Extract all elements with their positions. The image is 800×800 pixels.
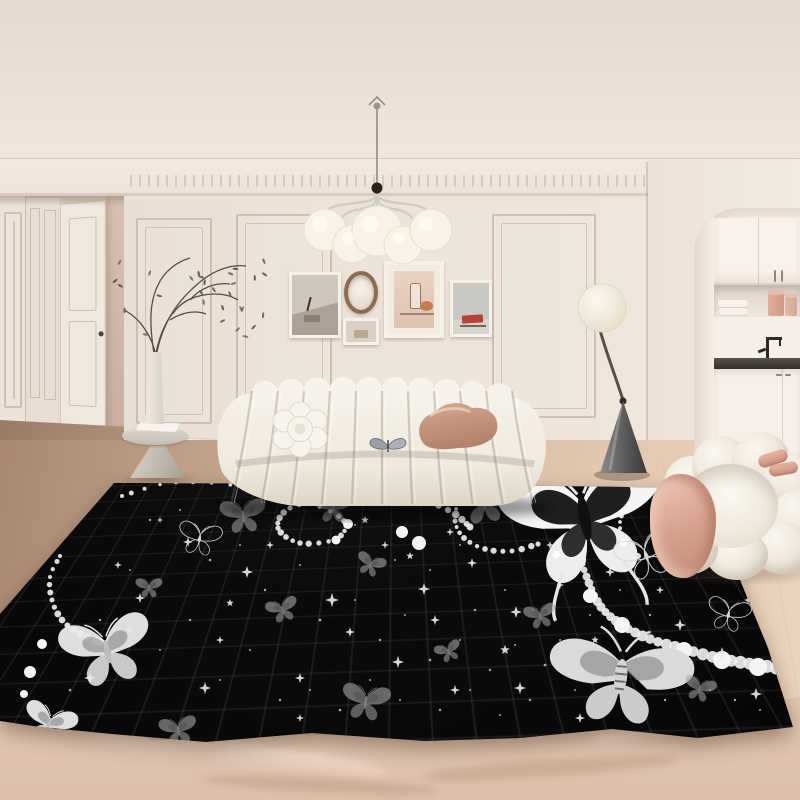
cabinet-handle <box>785 374 791 376</box>
wainscot-panel <box>492 214 596 418</box>
picture-frame-sketch <box>289 272 341 338</box>
hallway-back-wall <box>106 196 124 456</box>
dentil-band <box>130 175 690 187</box>
floor-planks <box>260 446 481 496</box>
picture-frame-small <box>343 318 379 345</box>
folded-towel <box>719 308 748 315</box>
kitchen-niche-shelf <box>714 285 800 317</box>
upper-cabinets <box>714 218 800 285</box>
cabinet-handle <box>776 374 782 376</box>
door-handle <box>99 331 104 336</box>
wall-corner <box>646 162 648 468</box>
round-bronze-mirror <box>344 271 378 314</box>
cabinet-handle <box>774 270 776 282</box>
picture-frame-still-life <box>384 261 444 338</box>
backsplash <box>714 317 800 358</box>
wainscot-panel <box>136 218 212 424</box>
open-door <box>60 200 106 440</box>
countertop-sink <box>714 358 800 369</box>
pink-canister <box>768 293 784 316</box>
vase <box>146 352 164 424</box>
faucet-lever <box>758 348 767 354</box>
picture-frame-red-art <box>450 280 492 337</box>
folded-towel <box>718 300 748 307</box>
pink-canister <box>785 296 797 316</box>
bubble-armchair <box>648 430 800 588</box>
cabinet-handle <box>781 270 783 282</box>
living-room-photo <box>0 0 800 800</box>
